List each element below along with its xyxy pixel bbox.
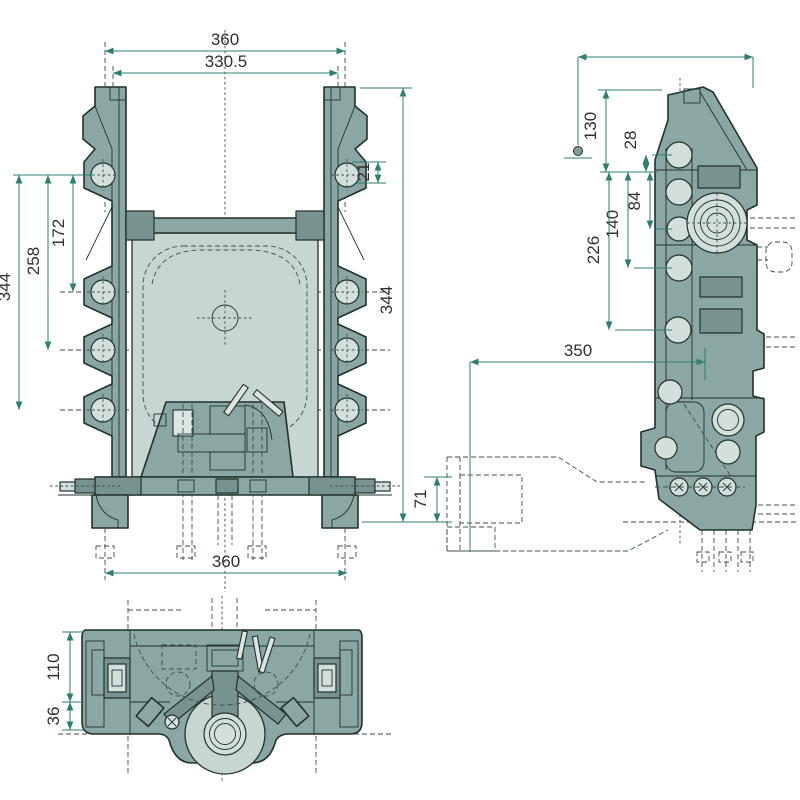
front-view: 360 330.5 21 172 258 xyxy=(0,30,452,592)
side-bottom-projections xyxy=(697,530,753,572)
front-base-bar xyxy=(50,477,400,495)
dim-bottom-boss-depth: 36 xyxy=(44,702,84,730)
dim-front-base-width: 360 xyxy=(105,552,347,573)
dim-label-side-boss-offset: 28 xyxy=(621,131,640,150)
dim-label-front-hole-span-full: 344 xyxy=(0,273,14,301)
dim-label-front-overall-height: 344 xyxy=(377,286,396,314)
dim-label-front-base-width: 360 xyxy=(212,552,240,571)
dim-label-side-boss-span-large: 226 xyxy=(584,236,603,264)
bottom-view: 110 36 xyxy=(44,596,392,782)
front-mechanism xyxy=(141,384,293,560)
dim-front-lug-hole-offset: 21 xyxy=(352,162,386,183)
dim-front-hole-span-small: 172 xyxy=(49,175,73,292)
dim-bottom-depth: 110 xyxy=(44,632,84,702)
drawing-canvas: 360 330.5 21 172 258 xyxy=(0,0,800,800)
dim-label-bottom-depth: 110 xyxy=(44,653,63,680)
dim-label-front-hole-span-mid: 258 xyxy=(24,247,43,275)
dim-label-side-upper-height: 130 xyxy=(581,112,600,140)
bottom-center-boss xyxy=(204,713,246,755)
dim-front-hole-span-mid: 258 xyxy=(24,175,48,350)
dim-front-top-inner-width: 330.5 xyxy=(113,52,338,73)
dim-front-overall-height: 344 xyxy=(360,88,452,522)
leader-dot xyxy=(574,147,583,156)
front-right-rail xyxy=(324,87,367,477)
dim-label-front-top-inner-width: 330.5 xyxy=(205,52,248,71)
dim-label-front-lug-hole-offset: 21 xyxy=(354,163,373,182)
side-phantom-hook xyxy=(757,242,798,347)
front-left-rail xyxy=(83,87,126,477)
dim-label-side-overall-length: 350 xyxy=(564,341,592,360)
dim-label-front-hole-span-small: 172 xyxy=(49,219,68,247)
technical-drawing-page: 360 330.5 21 172 258 xyxy=(0,0,800,800)
side-view: 130 28 84 140 226 xyxy=(411,57,798,572)
dim-label-side-boss-span-mid: 140 xyxy=(603,210,622,238)
dim-side-hitch-height: 71 xyxy=(411,477,452,522)
dim-front-top-width: 360 xyxy=(105,30,345,51)
dim-label-front-top-width: 360 xyxy=(211,30,239,49)
dim-front-hole-span-full: 344 xyxy=(0,175,19,410)
dim-label-side-hitch-height: 71 xyxy=(411,490,430,509)
dim-label-bottom-boss-depth: 36 xyxy=(44,707,63,726)
bottom-dimensions: 110 36 xyxy=(44,632,84,730)
